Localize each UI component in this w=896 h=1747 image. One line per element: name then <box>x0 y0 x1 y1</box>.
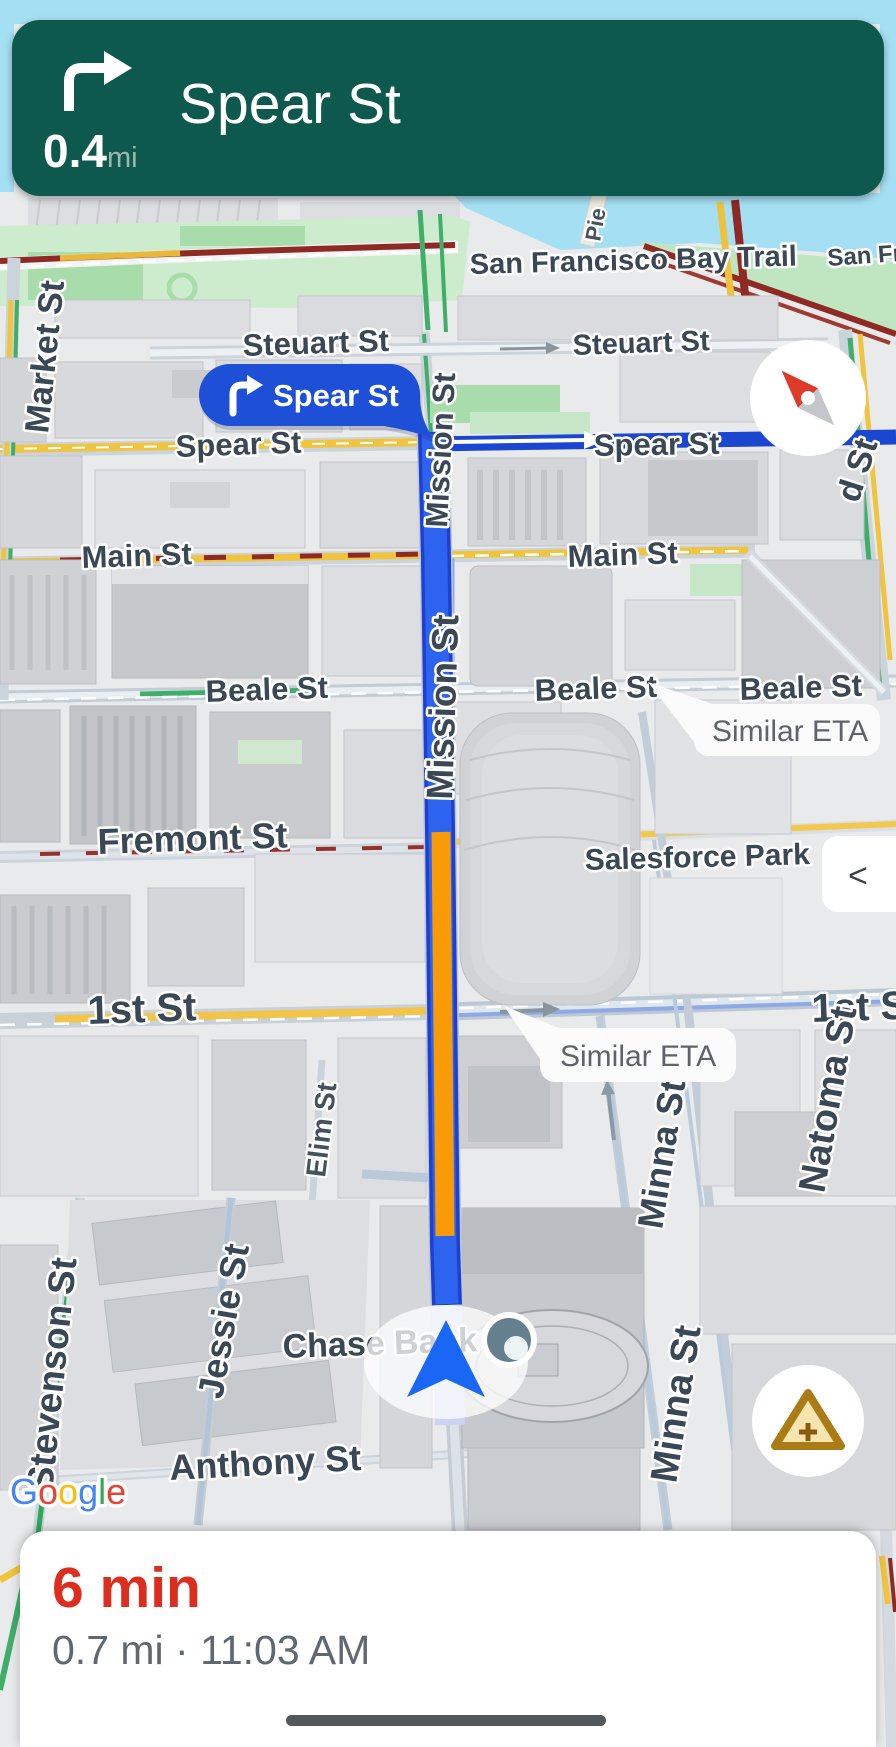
svg-text:Beale St: Beale St <box>739 668 862 707</box>
svg-text:Google: Google <box>10 1471 126 1512</box>
svg-text:Spear St: Spear St <box>594 426 720 463</box>
svg-text:Similar ETA: Similar ETA <box>712 715 868 748</box>
svg-text:Salesforce Park: Salesforce Park <box>584 838 810 877</box>
svg-text:Main St: Main St <box>567 535 678 574</box>
svg-text:<: < <box>848 857 868 895</box>
svg-text:Mission St: Mission St <box>419 614 466 800</box>
svg-text:1st St: 1st St <box>87 985 197 1033</box>
svg-text:Main St: Main St <box>81 536 192 575</box>
svg-text:Spear St: Spear St <box>273 378 399 413</box>
svg-text:Similar ETA: Similar ETA <box>560 1040 716 1073</box>
svg-text:Beale St: Beale St <box>534 669 657 708</box>
svg-text:Spear St: Spear St <box>175 425 302 464</box>
svg-text:Steuart St: Steuart St <box>572 325 710 362</box>
svg-text:Fremont St: Fremont St <box>97 814 288 862</box>
svg-text:Beale St: Beale St <box>205 670 328 709</box>
svg-text:Steuart St: Steuart St <box>242 323 390 363</box>
